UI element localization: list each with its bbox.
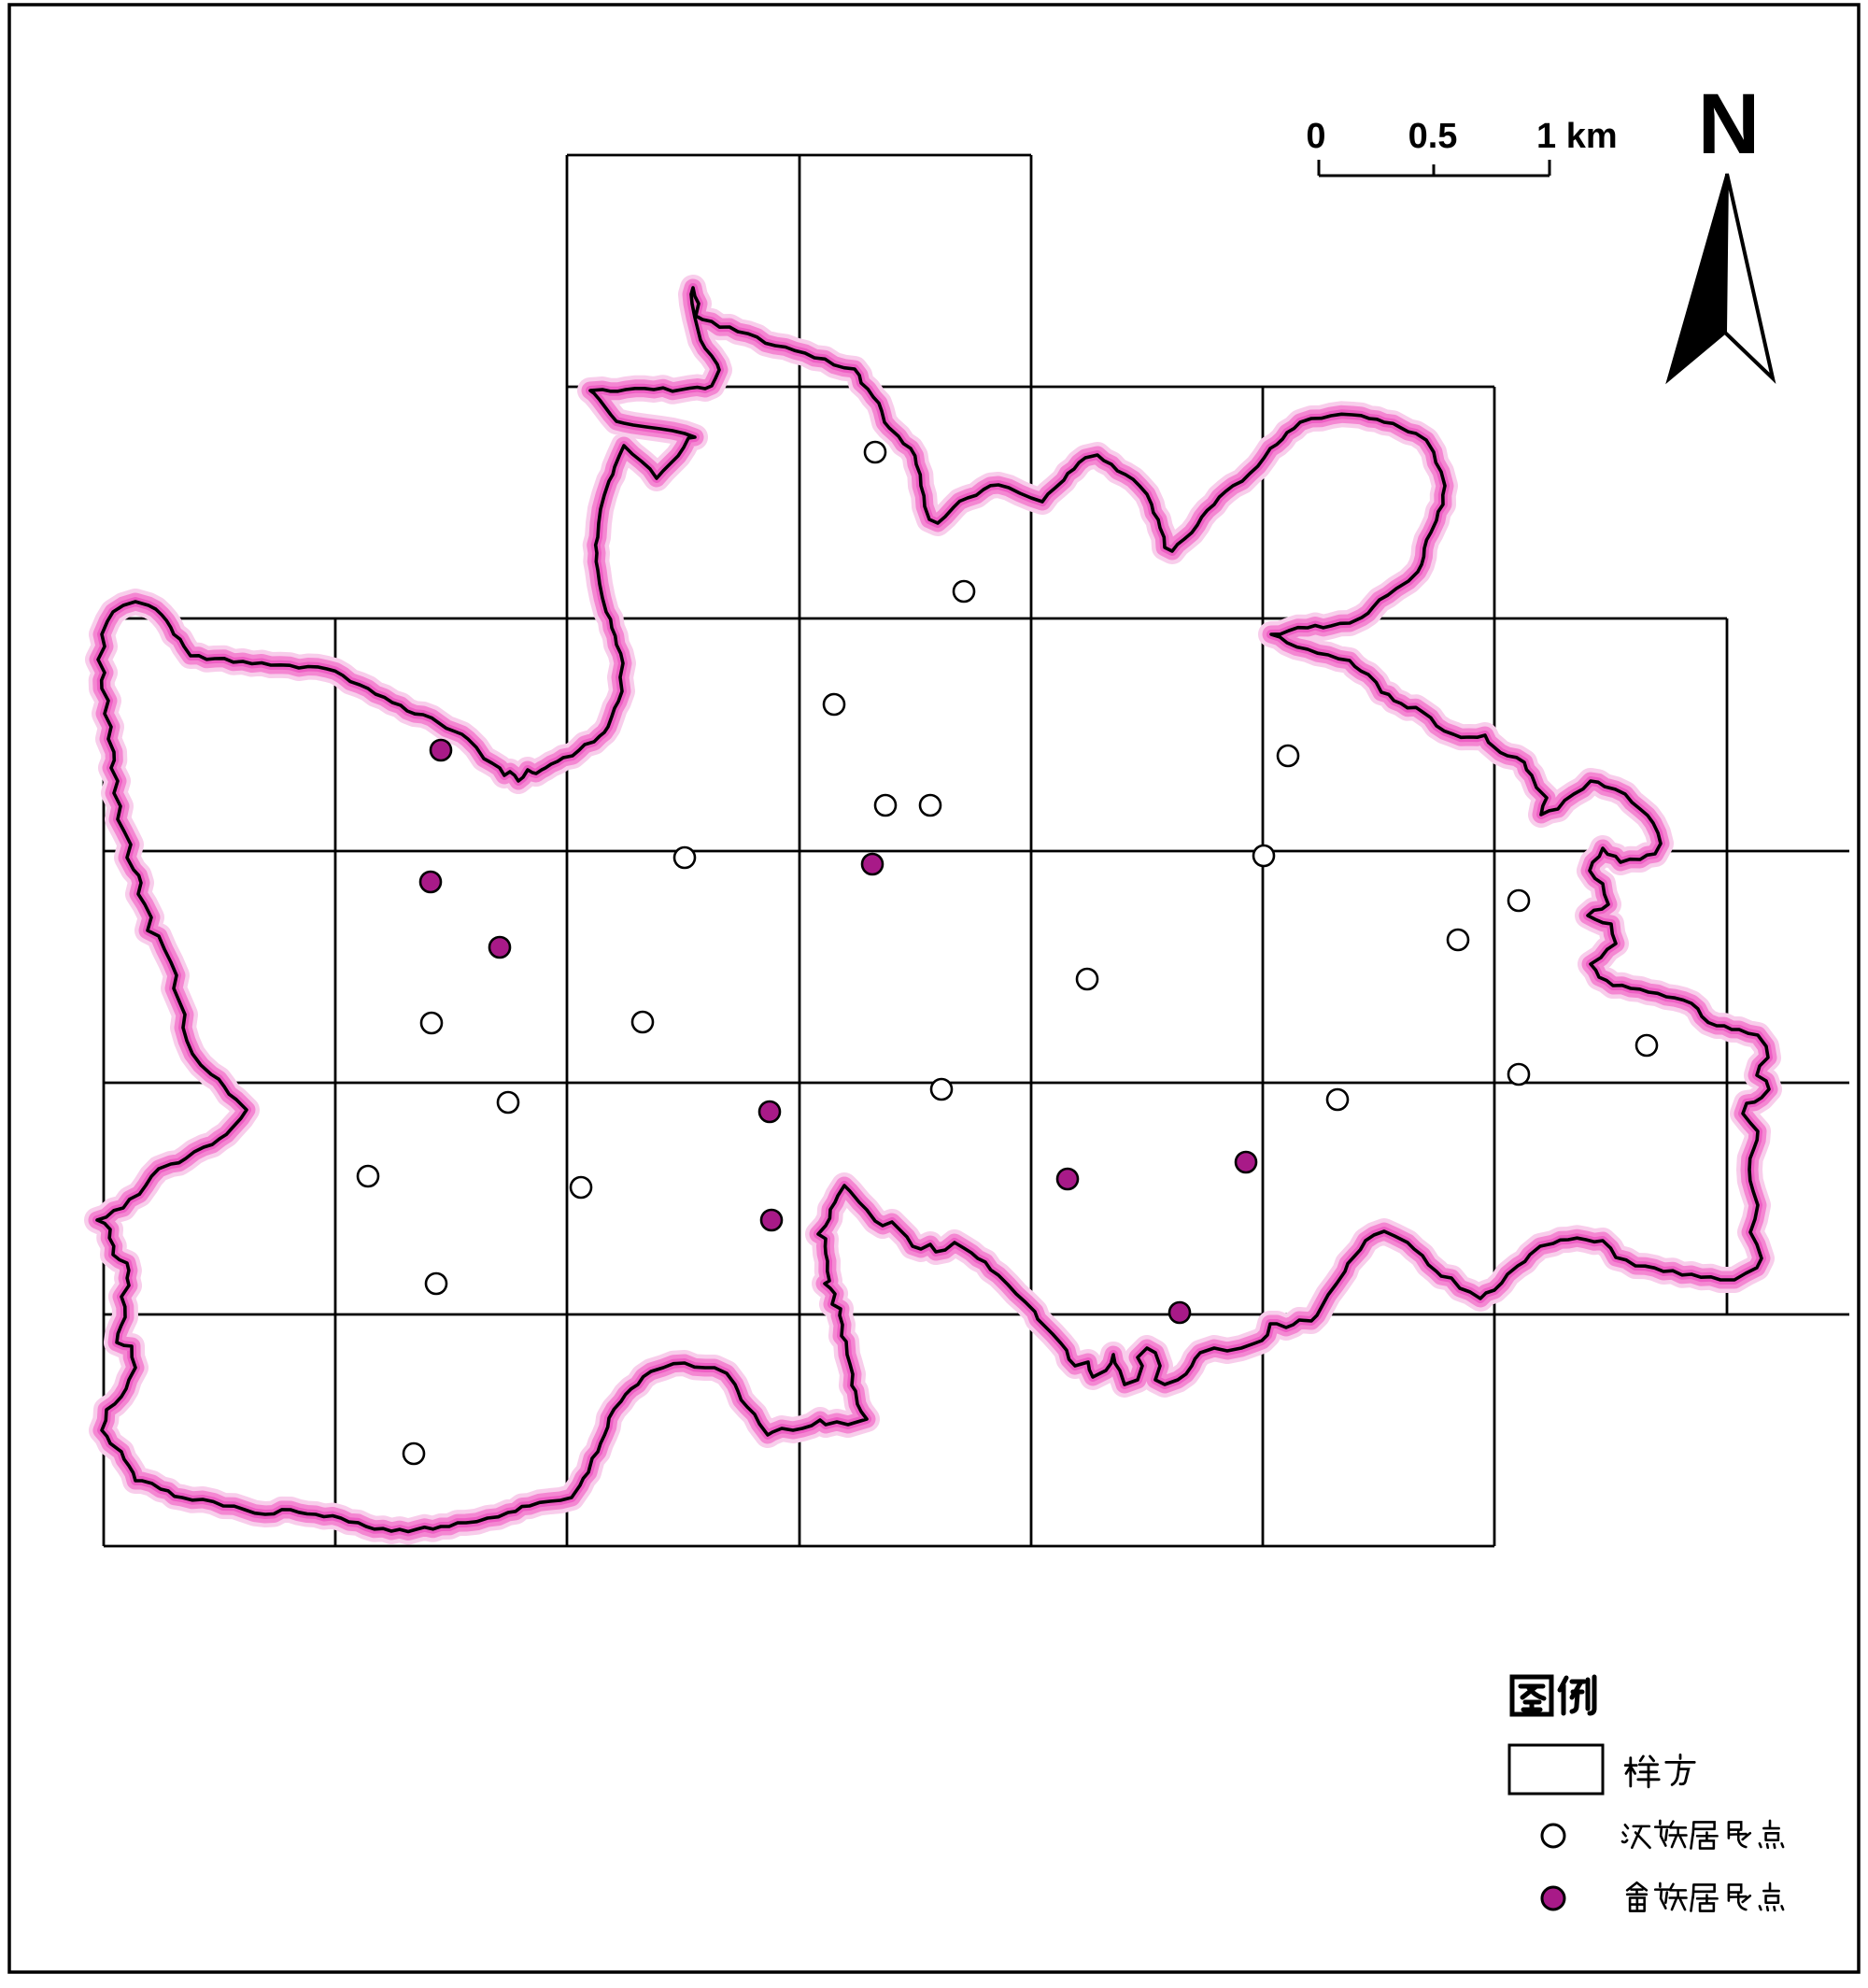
svg-text:N: N [1698, 77, 1760, 172]
svg-text:1 km: 1 km [1536, 117, 1618, 156]
svg-text:0: 0 [1306, 117, 1325, 156]
svg-text:0.5: 0.5 [1408, 117, 1458, 156]
